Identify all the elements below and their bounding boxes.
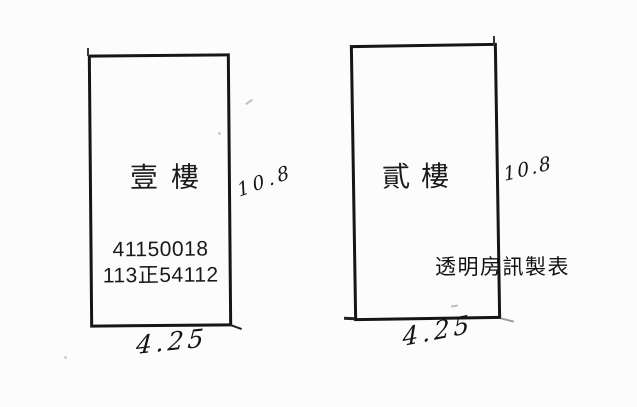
unit2-floor-label: 貳樓 [382, 154, 461, 195]
unit1-registration-number-1: 41150018 [92, 236, 228, 263]
floorplan-sheet: 壹樓 41150018 113正54112 貳樓 10.8 4.25 10.8 … [0, 0, 637, 407]
scan-speck [245, 99, 253, 105]
unit1-floor-label: 壹樓 [130, 156, 212, 197]
unit1-registration-number-2: 113正54112 [93, 262, 229, 289]
corner-tick [87, 48, 89, 56]
unit1-outline: 壹樓 41150018 113正54112 [88, 53, 232, 327]
unit1-depth-dimension: 10.8 [235, 160, 295, 201]
unit1-registration-block: 41150018 113正54112 [92, 236, 228, 289]
unit2-depth-dimension: 10.8 [502, 152, 554, 186]
unit1-width-dimension: 4.25 [135, 323, 208, 360]
stroke-tail [344, 317, 355, 321]
corner-tick [493, 36, 495, 46]
scan-speck [64, 356, 67, 359]
stroke-tail [501, 317, 514, 322]
publisher-watermark: 透明房訊製表 [435, 251, 570, 281]
stroke-tail [230, 324, 242, 330]
scan-speck [218, 132, 221, 135]
